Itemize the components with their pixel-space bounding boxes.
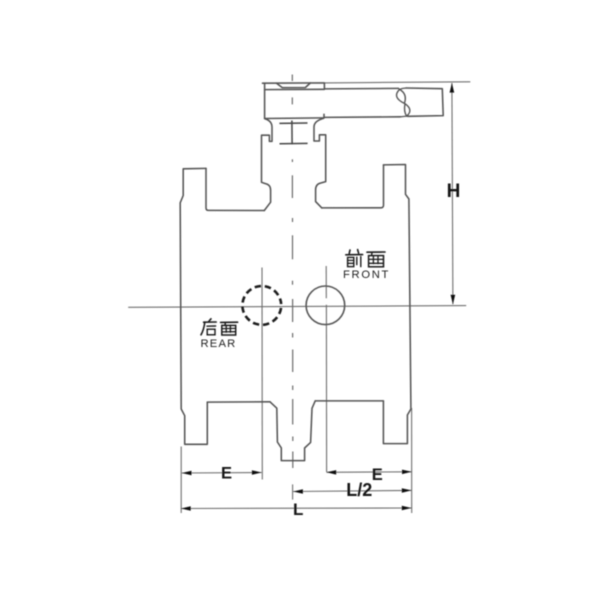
svg-text:E: E	[221, 465, 232, 483]
svg-text:L: L	[293, 500, 303, 519]
svg-text:L/2: L/2	[346, 480, 372, 500]
svg-text:E: E	[372, 466, 383, 484]
svg-text:REAR: REAR	[201, 338, 237, 350]
svg-text:H: H	[447, 181, 461, 202]
svg-text:FRONT: FRONT	[343, 269, 390, 281]
